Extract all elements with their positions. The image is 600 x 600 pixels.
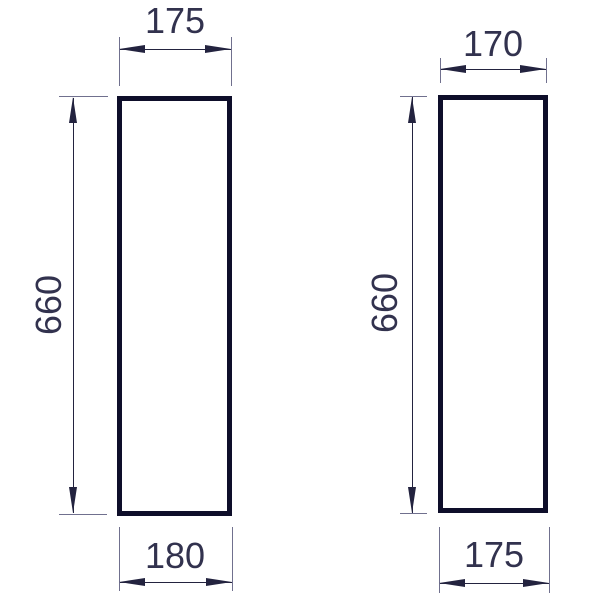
arrowhead-left-icon xyxy=(439,579,465,587)
extension-line xyxy=(231,37,232,86)
extension-line xyxy=(400,513,427,514)
extension-line xyxy=(549,527,550,593)
arrowhead-right-icon xyxy=(206,578,232,586)
left-side-dimension-label: 660 xyxy=(31,245,67,365)
dimension-line xyxy=(412,97,413,513)
right-side-dimension-label: 660 xyxy=(367,243,403,363)
arrowhead-up-icon xyxy=(69,97,77,123)
arrowhead-left-icon xyxy=(119,45,145,53)
dimension-line xyxy=(73,98,74,513)
extension-line xyxy=(546,58,547,83)
right-rectangle-outline xyxy=(438,95,548,513)
extension-line xyxy=(59,96,108,97)
right-top-dimension-label: 170 xyxy=(438,26,548,62)
drawing-canvas: 175 660 180 170 660 xyxy=(0,0,600,600)
extension-line xyxy=(232,527,233,591)
arrowhead-right-icon xyxy=(523,579,549,587)
left-top-dimension-label: 175 xyxy=(117,3,233,39)
arrowhead-left-icon xyxy=(119,578,145,586)
arrowhead-left-icon xyxy=(440,65,466,73)
left-rectangle-outline xyxy=(117,96,232,516)
arrowhead-right-icon xyxy=(205,45,231,53)
arrowhead-down-icon xyxy=(69,487,77,513)
arrowhead-down-icon xyxy=(408,487,416,513)
arrowhead-up-icon xyxy=(408,97,416,123)
right-bottom-dimension-label: 175 xyxy=(438,537,550,573)
extension-line xyxy=(59,514,107,515)
arrowhead-right-icon xyxy=(520,65,546,73)
left-bottom-dimension-label: 180 xyxy=(117,538,233,574)
